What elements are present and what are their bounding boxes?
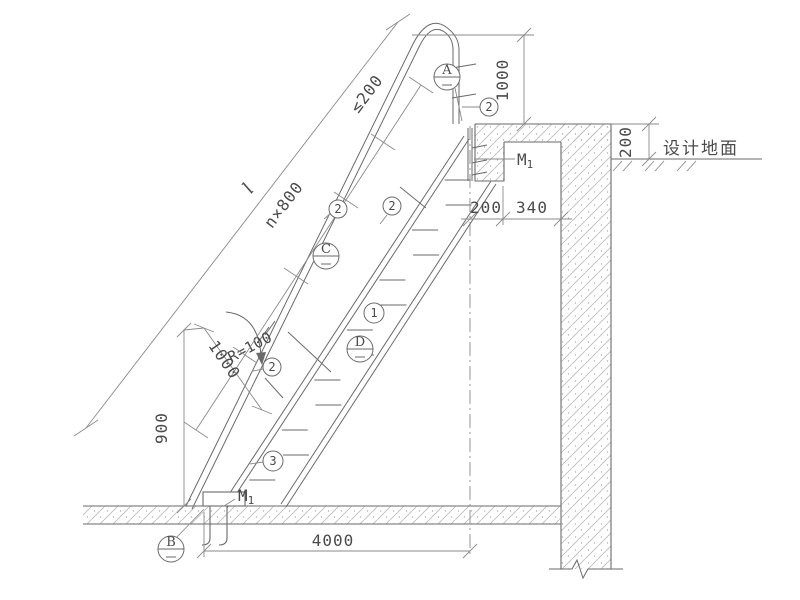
ground-slab	[83, 506, 561, 524]
drawing-canvas: 设计地面 M1 M1 R=1	[0, 0, 800, 600]
base-plate-m: M	[238, 486, 248, 505]
brace-tick	[265, 378, 283, 398]
brace-tick	[400, 187, 426, 208]
wall-hatch	[561, 124, 611, 569]
section-d-label: D	[355, 335, 365, 350]
brace-tick	[288, 332, 331, 372]
part-2-label: 2	[334, 202, 341, 216]
ground-hatch-ticks	[613, 161, 696, 171]
section-a-label: A	[441, 63, 452, 78]
section-marker-c: C	[313, 242, 339, 269]
part-2-label: 2	[388, 199, 395, 213]
part-marker-1: 1	[364, 303, 384, 323]
part-3-label: 3	[269, 454, 276, 468]
part-marker-2-top: 2	[462, 98, 498, 116]
base-plate-sub: 1	[248, 494, 255, 507]
base-plate-label: M1	[238, 486, 254, 507]
part-marker-2-mid-right: 2	[380, 197, 401, 224]
embed-plate-label: M1	[517, 150, 533, 171]
ladder-stringers	[222, 136, 496, 508]
design-ground-label: 设计地面	[663, 139, 739, 159]
post-splice-tick	[452, 94, 476, 98]
ladder-rungs	[249, 180, 471, 480]
section-marker-d: D	[347, 335, 373, 362]
embed-plate-m: M	[517, 150, 527, 169]
design-ground	[611, 159, 762, 171]
embed-plate-sub: 1	[527, 158, 534, 171]
dim-340-label: 340	[516, 198, 548, 217]
dim-900	[177, 323, 204, 513]
part-marker-2-mid-left: 2	[324, 200, 347, 219]
section-c-label: C	[321, 242, 331, 257]
dim-1000-top	[412, 28, 534, 131]
overall-length-label: l	[239, 180, 259, 198]
dim-200-right-label: 200	[616, 126, 635, 158]
parapet-top-hatch	[475, 124, 611, 142]
section-b-label: B	[166, 535, 176, 550]
part-1-label: 1	[370, 306, 377, 320]
slab-hatch	[83, 506, 561, 524]
dim-900-label: 900	[152, 412, 171, 444]
part-2-label: 2	[268, 360, 275, 374]
dim-1000-top-label: 1000	[493, 59, 512, 102]
dim-4000-label: 4000	[312, 531, 355, 550]
part-2-label: 2	[485, 100, 492, 114]
rung-spacing-label: n×800	[260, 178, 307, 232]
dim-200-label: 200	[470, 198, 502, 217]
section-marker-a: A	[434, 63, 462, 121]
cad-drawing-page: 设计地面 M1 M1 R=1	[0, 0, 800, 600]
